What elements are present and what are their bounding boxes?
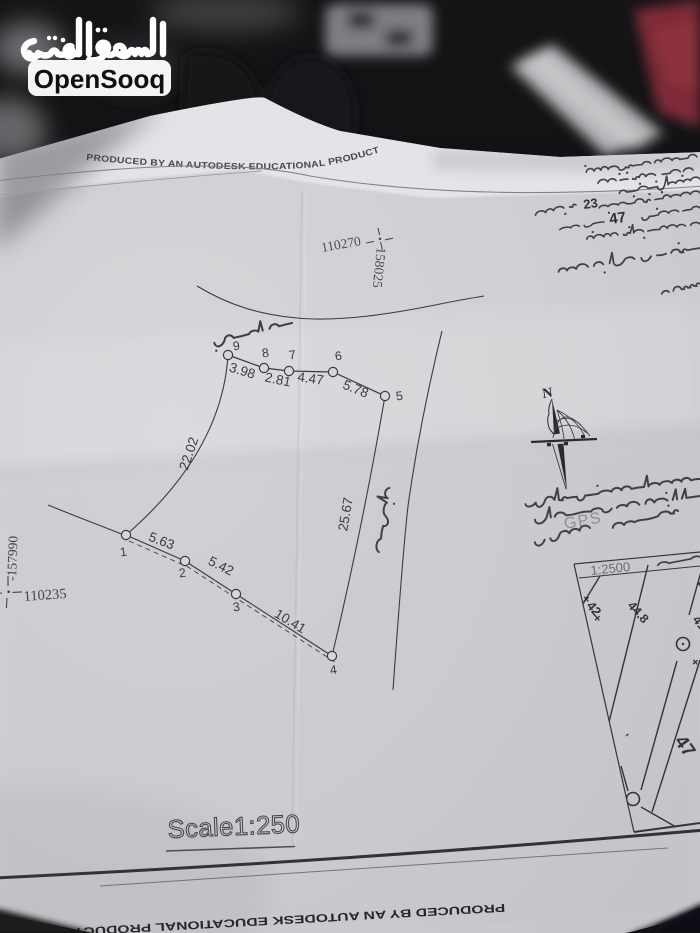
svg-text:23: 23 [582,195,598,212]
svg-text:47: 47 [608,209,627,228]
svg-text:OpenSooq: OpenSooq [34,64,165,94]
svg-text:-157990: -157990 [4,535,21,581]
svg-text:110235: 110235 [23,586,67,605]
svg-text:Scale1:250: Scale1:250 [167,810,301,844]
